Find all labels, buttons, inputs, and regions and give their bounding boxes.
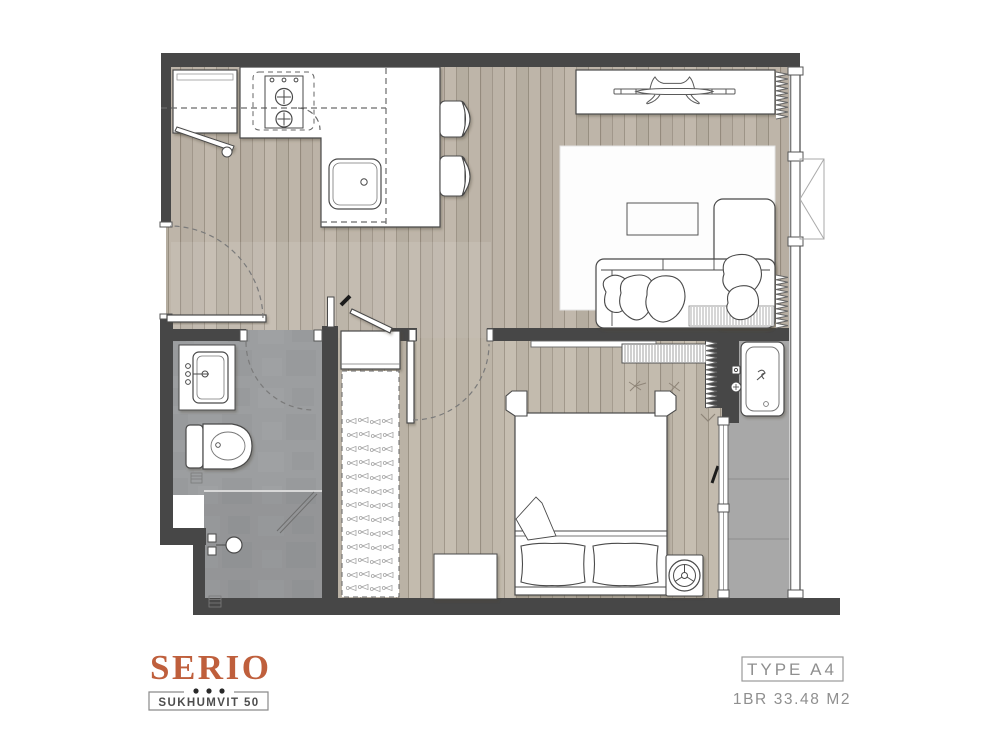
svg-text:SUKHUMVIT 50: SUKHUMVIT 50 xyxy=(158,697,259,709)
svg-text:SERIO: SERIO xyxy=(150,648,271,687)
svg-text:TYPE A4: TYPE A4 xyxy=(747,660,837,679)
svg-text:1BR 33.48 M2: 1BR 33.48 M2 xyxy=(733,691,851,708)
